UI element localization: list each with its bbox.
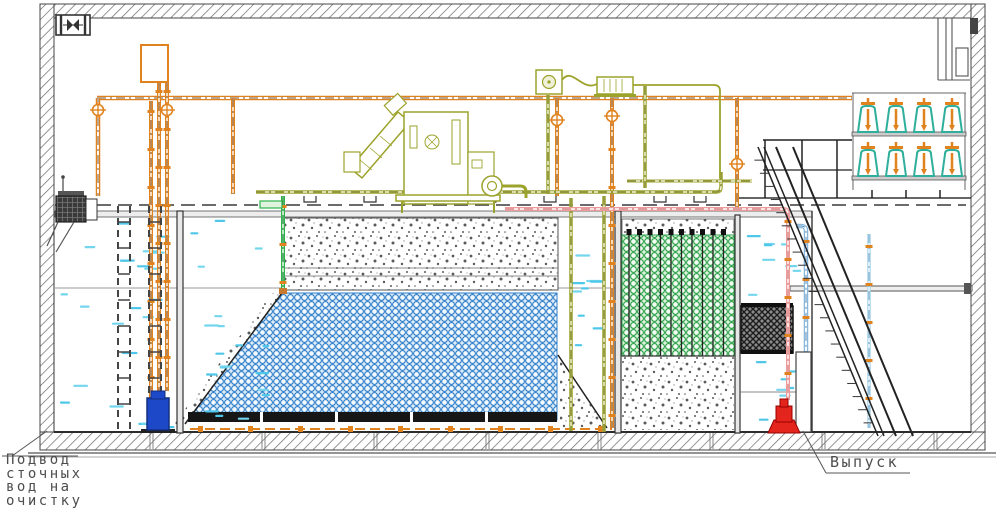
pipe-flange: [280, 281, 287, 284]
pipe-flange: [148, 262, 155, 265]
water-dash: [759, 419, 769, 421]
water-dash: [190, 232, 198, 234]
air-nozzle: [248, 426, 253, 432]
water-dash: [214, 315, 222, 317]
valve-icon: [159, 102, 175, 118]
water-dash: [80, 306, 90, 308]
floor-slab: [40, 432, 985, 450]
pipe-flange: [803, 316, 810, 319]
outlet-label: Выпуск: [830, 456, 899, 470]
water-dash: [112, 323, 124, 325]
water-dash: [255, 247, 263, 249]
pipe-flange: [609, 376, 616, 379]
diffuser-bell: [886, 98, 906, 132]
water-dash: [205, 410, 219, 412]
biofilter-green-tank: [622, 219, 734, 430]
pipe-flange: [609, 262, 616, 265]
pipe-flange: [164, 318, 171, 321]
pipe-flange: [156, 90, 163, 93]
water-dash: [578, 315, 585, 317]
water-dash: [255, 372, 269, 374]
pipe-flange: [609, 186, 616, 189]
beam-end-plate: [964, 283, 971, 294]
water-dash: [120, 260, 135, 262]
water-dash: [206, 373, 218, 375]
water-dash: [204, 324, 219, 326]
diffuser-bell: [858, 98, 878, 132]
pipe-flange: [866, 283, 873, 286]
valve-icon: [549, 112, 565, 128]
pipe-flange: [785, 334, 792, 337]
drawing-canvas: [0, 0, 1000, 512]
air-nozzle: [548, 426, 553, 432]
diffuser-bell: [886, 142, 906, 176]
pipe-flange: [164, 166, 171, 169]
water-dash: [73, 385, 88, 387]
equipment-stand: [396, 195, 500, 201]
water-dash: [238, 418, 249, 420]
pipe-flange: [866, 359, 873, 362]
pipe-flange: [156, 128, 163, 131]
water-dash: [581, 287, 589, 289]
valve-icon: [90, 102, 106, 118]
outlet-label-text: Выпуск: [830, 453, 899, 471]
dosing-tank: [141, 45, 168, 82]
diffuser-bell: [942, 142, 962, 176]
water-dash: [575, 254, 590, 256]
air-nozzle: [498, 426, 503, 432]
diffuser-bell: [942, 98, 962, 132]
water-dash: [131, 307, 142, 309]
pipe-flange: [164, 90, 171, 93]
blower-units: [536, 70, 720, 178]
media-bed-green: [622, 235, 734, 356]
pipe-flange: [866, 245, 873, 248]
pipe-support-brackets: [304, 196, 706, 202]
roof-slab: [40, 4, 985, 18]
left-wall: [40, 4, 54, 450]
water-dash: [748, 294, 758, 296]
pipe-flange: [785, 372, 792, 375]
water-dash: [793, 270, 802, 272]
outlet-chamber: [796, 352, 811, 432]
aeration-grid: [188, 412, 612, 432]
diffuser-racks: [852, 93, 966, 190]
inlet-label: Подвод сточных вод на очистку: [6, 454, 83, 508]
water-dash: [764, 244, 773, 246]
water-dash: [215, 220, 226, 222]
water-dash: [215, 353, 224, 355]
pipe-flange: [148, 148, 155, 151]
right-wall: [971, 4, 985, 450]
water-dash: [258, 389, 269, 391]
diffuser-bell: [914, 142, 934, 176]
pipe-flange: [785, 258, 792, 261]
water-dash: [85, 246, 96, 248]
pipe-flange: [164, 280, 171, 283]
air-nozzle: [348, 426, 353, 432]
inlet-label-line: очистку: [6, 495, 83, 509]
valve-icon: [604, 108, 620, 124]
diffuser-bell: [914, 98, 934, 132]
pipe-flange: [164, 204, 171, 207]
water-dash: [590, 281, 603, 283]
water-dash: [220, 365, 232, 367]
pipe-flange: [609, 338, 616, 341]
pipe-flange: [148, 186, 155, 189]
pipe-flange: [164, 128, 171, 131]
water-dash: [109, 405, 124, 407]
outlet-pump-red: [768, 399, 800, 433]
valve-icon: [729, 156, 745, 172]
gravel-layer-top: [284, 218, 558, 290]
air-nozzle: [398, 426, 403, 432]
motor-unit: [597, 77, 633, 94]
ventilation-fan-icon: [56, 15, 90, 35]
pipe-flange: [609, 300, 616, 303]
water-dash: [235, 344, 243, 346]
water-dash: [747, 235, 761, 237]
water-dash: [762, 259, 775, 261]
air-nozzle: [448, 426, 453, 432]
screw-press-equipment: [344, 94, 526, 213]
cad-drawing: Подвод сточных вод на очистку Выпуск: [0, 0, 1000, 512]
pipe-flange: [164, 242, 171, 245]
water-dash: [756, 361, 767, 363]
air-nozzle: [198, 426, 203, 432]
pipe-flange: [156, 166, 163, 169]
pipe-flange: [148, 110, 155, 113]
water-dash: [262, 394, 271, 396]
pipe-flange: [609, 414, 616, 417]
water-dash: [215, 415, 223, 417]
air-nozzle: [298, 426, 303, 432]
pipe-flange: [609, 148, 616, 151]
diffuser-bell: [858, 142, 878, 176]
water-dash: [60, 402, 70, 404]
pipe-flange: [609, 224, 616, 227]
media-bed-blue: [188, 293, 557, 420]
water-dash: [575, 344, 582, 346]
water-dash: [262, 345, 269, 347]
clarifier-baffle: [741, 303, 793, 354]
water-dash: [198, 266, 206, 268]
gravel-layer-bottom: [622, 356, 734, 430]
pipe-flange: [164, 356, 171, 359]
pipe-flange: [280, 243, 287, 246]
water-dash: [61, 293, 69, 295]
pipe-flange: [785, 296, 792, 299]
